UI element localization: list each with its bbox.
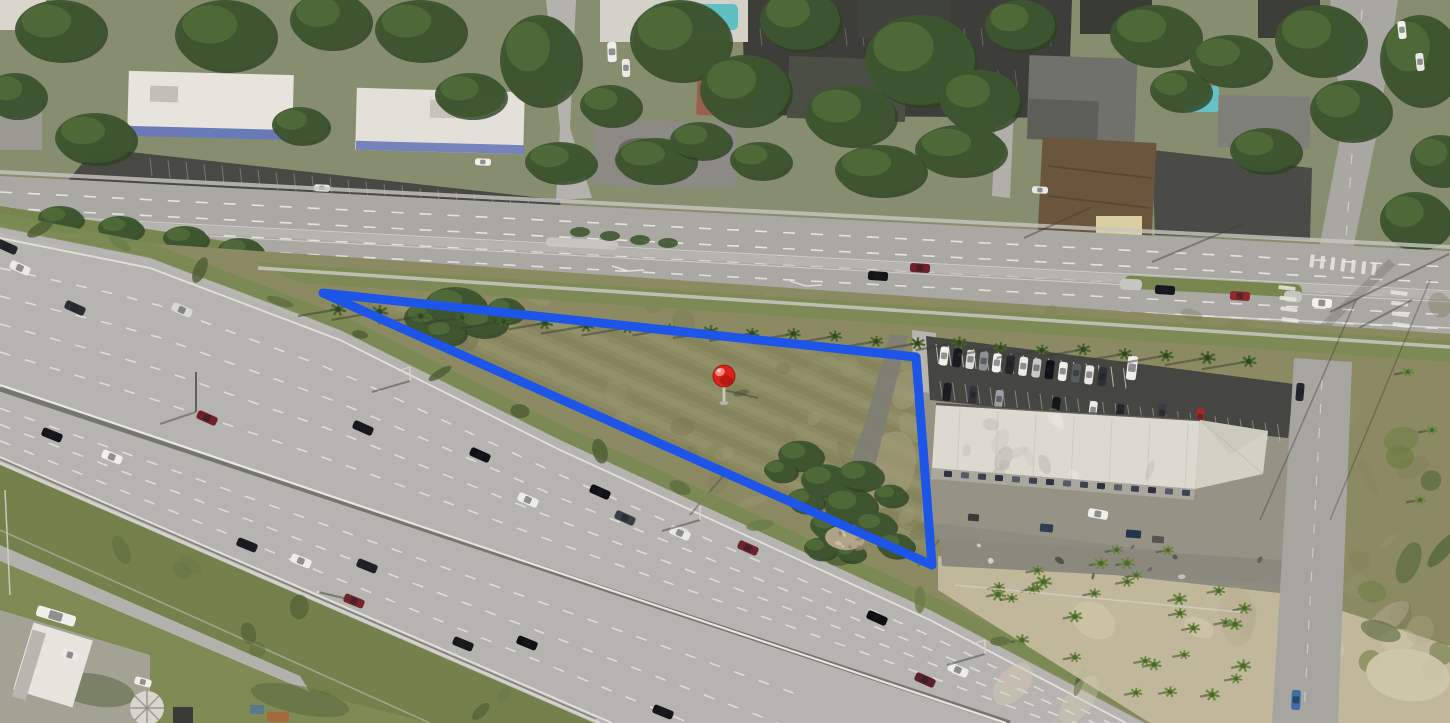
car-glass [1161, 286, 1168, 293]
aerial-photo [0, 0, 1450, 723]
palm-crown [1166, 548, 1170, 552]
car-glass [1159, 409, 1165, 416]
hvac-unit [1131, 486, 1139, 493]
median-island [1120, 278, 1143, 290]
car-glass [941, 352, 948, 359]
pin-pole [723, 385, 726, 403]
car-glass [1059, 368, 1066, 375]
palm-crown [1019, 638, 1024, 643]
hedge [630, 235, 650, 245]
palm-crown [1168, 689, 1173, 694]
hvac-unit [1029, 477, 1037, 484]
palm-crown [501, 319, 506, 324]
palm-crown [1178, 611, 1183, 616]
hedge [658, 238, 678, 248]
car-glass [1399, 26, 1405, 33]
hedge [600, 231, 620, 241]
photo-texture [1196, 39, 1240, 67]
palm-crown [1010, 596, 1014, 600]
palm-crown [1406, 370, 1410, 374]
photo-texture [1385, 196, 1424, 227]
palm-crown [1216, 589, 1220, 593]
car [1155, 285, 1176, 295]
car [1291, 690, 1301, 710]
photo-texture [585, 88, 618, 110]
car-glass [970, 391, 976, 398]
hvac-unit [1097, 483, 1105, 490]
palm-crown [335, 306, 341, 312]
photo-texture [876, 486, 894, 497]
car-glass [623, 65, 629, 71]
hvac-unit [944, 471, 952, 478]
palm-crown [1125, 579, 1129, 583]
hvac-unit [995, 475, 1003, 482]
hvac-unit [961, 472, 969, 479]
container [267, 712, 289, 722]
car [1295, 383, 1305, 402]
photo-texture [183, 5, 238, 44]
pin-ball-specular [717, 369, 721, 373]
palm-crown [832, 334, 837, 339]
photo-texture [922, 129, 972, 157]
car [1230, 291, 1251, 301]
car-glass [944, 388, 950, 395]
photo-texture [61, 117, 105, 145]
palm-crown [1035, 568, 1039, 572]
car-glass [1417, 58, 1423, 65]
hedge [570, 227, 590, 237]
palm-crown [1092, 591, 1096, 595]
car [868, 271, 889, 281]
pin-ball-shade [720, 376, 733, 386]
photo-texture [735, 145, 768, 165]
dumpster [1040, 523, 1054, 532]
car-glass [1236, 292, 1243, 299]
photo-texture [1117, 10, 1167, 43]
photo-texture [1155, 73, 1188, 95]
palm-crown [1191, 626, 1196, 631]
car-glass [1086, 371, 1093, 378]
car-glass [1046, 366, 1053, 373]
car-glass [1020, 363, 1027, 370]
car [1032, 186, 1048, 194]
palm-crown [1122, 351, 1127, 356]
photo-texture [440, 76, 479, 100]
shed [250, 705, 264, 714]
palm-crown [1030, 587, 1034, 591]
palm-crown [1041, 579, 1047, 585]
car-glass [1033, 364, 1040, 371]
hvac-unit [1046, 479, 1054, 486]
photo-texture [1282, 10, 1332, 49]
photo-texture [858, 514, 880, 528]
hvac-unit [1114, 484, 1122, 491]
photo-texture [621, 141, 665, 165]
car-glass [874, 272, 881, 279]
palm-crown [915, 341, 920, 346]
photo-texture [1235, 131, 1274, 155]
palm-crown [1209, 692, 1214, 697]
car-glass [1128, 363, 1137, 372]
car-glass [1073, 369, 1080, 376]
photo-texture [428, 322, 450, 335]
car-glass [980, 357, 987, 364]
photo-texture [506, 22, 550, 72]
car-glass [609, 48, 616, 55]
dumpster [1126, 529, 1142, 538]
photo-texture [166, 228, 190, 241]
car-glass [1297, 389, 1303, 396]
photo-texture [530, 145, 569, 167]
car-glass [916, 264, 923, 271]
hvac-unit [1182, 490, 1190, 497]
palm-crown [956, 340, 961, 345]
photo-texture [41, 208, 65, 221]
hvac-unit [1080, 481, 1088, 488]
palm-crown [1182, 653, 1186, 657]
palm-crown [1224, 620, 1228, 624]
palm-crown [1039, 348, 1044, 353]
car-glass [1007, 361, 1014, 368]
hvac-unit [1063, 480, 1071, 487]
car-glass [993, 359, 1000, 366]
car-glass [996, 395, 1002, 402]
palm-crown [1234, 676, 1238, 680]
house-roof [1027, 99, 1098, 141]
palm-crown [1152, 662, 1157, 667]
photo-texture [638, 6, 693, 50]
pin-base [720, 401, 729, 405]
photo-texture [22, 5, 72, 38]
car [910, 263, 931, 273]
palm-crown [1081, 347, 1086, 352]
palm-crown [1134, 573, 1138, 577]
palm-crown [791, 331, 796, 336]
palm-crown [1430, 428, 1434, 432]
photo-texture [1316, 85, 1360, 118]
palm-crown [1073, 655, 1077, 659]
palm-crown [1124, 560, 1129, 565]
hvac-unit [1148, 487, 1156, 494]
photo-texture [806, 539, 824, 550]
hvac-unit [1165, 488, 1173, 495]
palm-crown [1072, 614, 1077, 619]
photo-texture [842, 149, 892, 177]
light-pole [317, 591, 320, 594]
car-glass [1293, 696, 1300, 703]
photo-texture [873, 22, 934, 72]
photo-texture [101, 218, 125, 231]
car-glass [967, 356, 974, 363]
car [622, 59, 631, 77]
palm-crown [1418, 498, 1422, 502]
palm-crown [998, 345, 1003, 350]
palm-crown [995, 592, 1001, 598]
photo-texture [382, 5, 432, 38]
palm-crown [1246, 359, 1251, 364]
dumpster [1152, 535, 1165, 543]
car [1312, 298, 1333, 308]
palm-crown [1098, 561, 1103, 566]
photo-texture [781, 443, 805, 459]
roof-unit [150, 86, 178, 103]
photo-texture [812, 90, 862, 123]
photo-texture [805, 467, 831, 484]
palm-crown [418, 313, 423, 318]
photo-texture [990, 4, 1029, 32]
palm-crown [1163, 353, 1168, 358]
photo-texture [841, 463, 865, 479]
photo-texture [276, 110, 307, 130]
photo-texture [675, 125, 708, 145]
palm-crown [1115, 548, 1119, 552]
car-glass [480, 160, 486, 165]
aerial-map-view [0, 0, 1450, 723]
dumpster [968, 514, 980, 522]
palm-crown [1241, 663, 1246, 668]
car-glass [1318, 299, 1325, 306]
car-glass [1094, 510, 1102, 518]
shed [173, 707, 193, 723]
palm-crown [460, 315, 465, 320]
photo-texture [828, 491, 857, 510]
car-glass [1099, 373, 1106, 380]
palm-crown [1232, 622, 1237, 627]
palm-crown [1143, 659, 1147, 663]
hvac-unit [978, 473, 986, 480]
photo-texture [707, 60, 757, 99]
photo-texture [1415, 139, 1448, 167]
palm-crown [1177, 596, 1182, 601]
palm-crown [1134, 691, 1138, 695]
palm-crown [1242, 606, 1247, 611]
car-glass [1053, 402, 1059, 409]
photo-texture [946, 75, 990, 108]
palm-crown [874, 339, 879, 344]
car [475, 158, 491, 166]
photo-texture [766, 461, 784, 472]
car-glass [1037, 188, 1043, 193]
hvac-unit [1012, 476, 1020, 483]
palm-crown [1205, 355, 1211, 361]
car [607, 42, 617, 62]
